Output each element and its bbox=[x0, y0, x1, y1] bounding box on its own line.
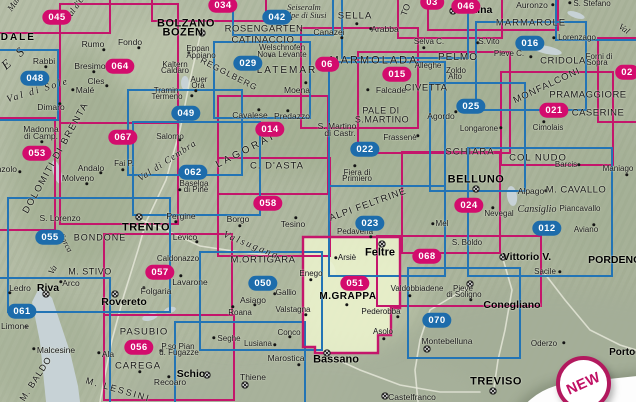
sheet-badge-046[interactable]: 046 bbox=[451, 0, 480, 13]
sheet-badge-016[interactable]: 016 bbox=[515, 36, 544, 51]
sheet-badge-015[interactable]: 015 bbox=[382, 67, 411, 82]
new-sticker-label: NEW bbox=[564, 369, 603, 398]
sheet-badge-042[interactable]: 042 bbox=[262, 10, 291, 25]
sheet-badge-067[interactable]: 067 bbox=[108, 130, 137, 145]
sheet-badge-03[interactable]: 03 bbox=[420, 0, 444, 9]
sheet-badge-055[interactable]: 055 bbox=[35, 230, 64, 245]
sheet-badge-045[interactable]: 045 bbox=[42, 10, 71, 25]
sheet-badge-048[interactable]: 048 bbox=[20, 71, 49, 86]
sheet-badge-06[interactable]: 06 bbox=[315, 57, 339, 72]
sheet-badge-014[interactable]: 014 bbox=[255, 122, 284, 137]
sheet-badge-051[interactable]: 051 bbox=[340, 276, 369, 291]
sheet-badge-061[interactable]: 061 bbox=[7, 304, 36, 319]
sheet-badge-023[interactable]: 023 bbox=[355, 216, 384, 231]
sheet-badge-049[interactable]: 049 bbox=[171, 106, 200, 121]
sheet-badge-029[interactable]: 029 bbox=[233, 56, 262, 71]
sheet-badge-062[interactable]: 062 bbox=[178, 165, 207, 180]
sheet-badge-025[interactable]: 025 bbox=[456, 99, 485, 114]
sheet-badge-056[interactable]: 056 bbox=[124, 340, 153, 355]
sheet-badge-068[interactable]: 068 bbox=[412, 249, 441, 264]
sheet-badge-012[interactable]: 012 bbox=[532, 221, 561, 236]
sheet-badge-022[interactable]: 022 bbox=[350, 142, 379, 157]
sheet-badge-070[interactable]: 070 bbox=[422, 313, 451, 328]
sheet-badge-034[interactable]: 034 bbox=[208, 0, 237, 12]
sheet-badge-02[interactable]: 02 bbox=[615, 65, 636, 80]
map-sheet-index: EDALEE SVal d'UMarBOLZANOBOZENEppanAppia… bbox=[0, 0, 636, 402]
sheet-badge-058[interactable]: 058 bbox=[253, 196, 282, 211]
sheet-badge-024[interactable]: 024 bbox=[454, 198, 483, 213]
sheet-badge-050[interactable]: 050 bbox=[248, 276, 277, 291]
sheet-badge-021[interactable]: 021 bbox=[539, 103, 568, 118]
sheet-badge-053[interactable]: 053 bbox=[22, 146, 51, 161]
sheet-badges-layer: 0450420340460306404802906015016020490140… bbox=[0, 0, 636, 402]
sheet-badge-064[interactable]: 064 bbox=[105, 59, 134, 74]
new-sticker: NEW bbox=[556, 356, 611, 402]
sheet-badge-057[interactable]: 057 bbox=[145, 265, 174, 280]
